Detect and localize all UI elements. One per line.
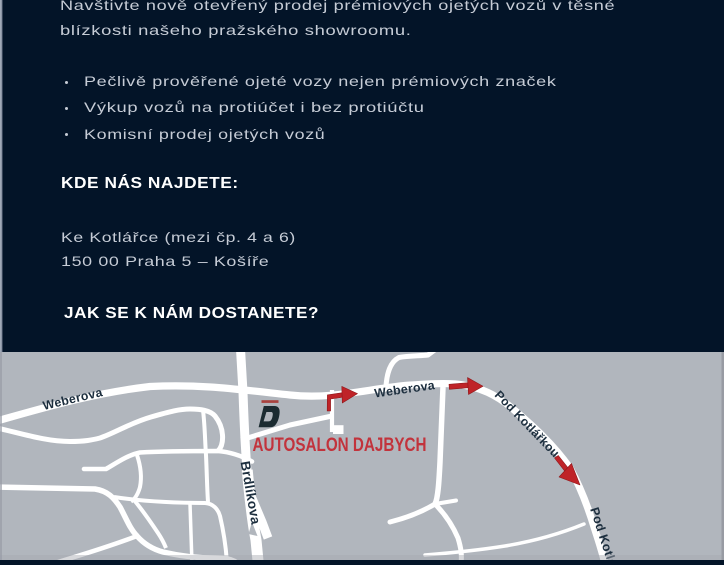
svg-text:AUTOSALON DAJBYCH: AUTOSALON DAJBYCH [253,435,427,456]
